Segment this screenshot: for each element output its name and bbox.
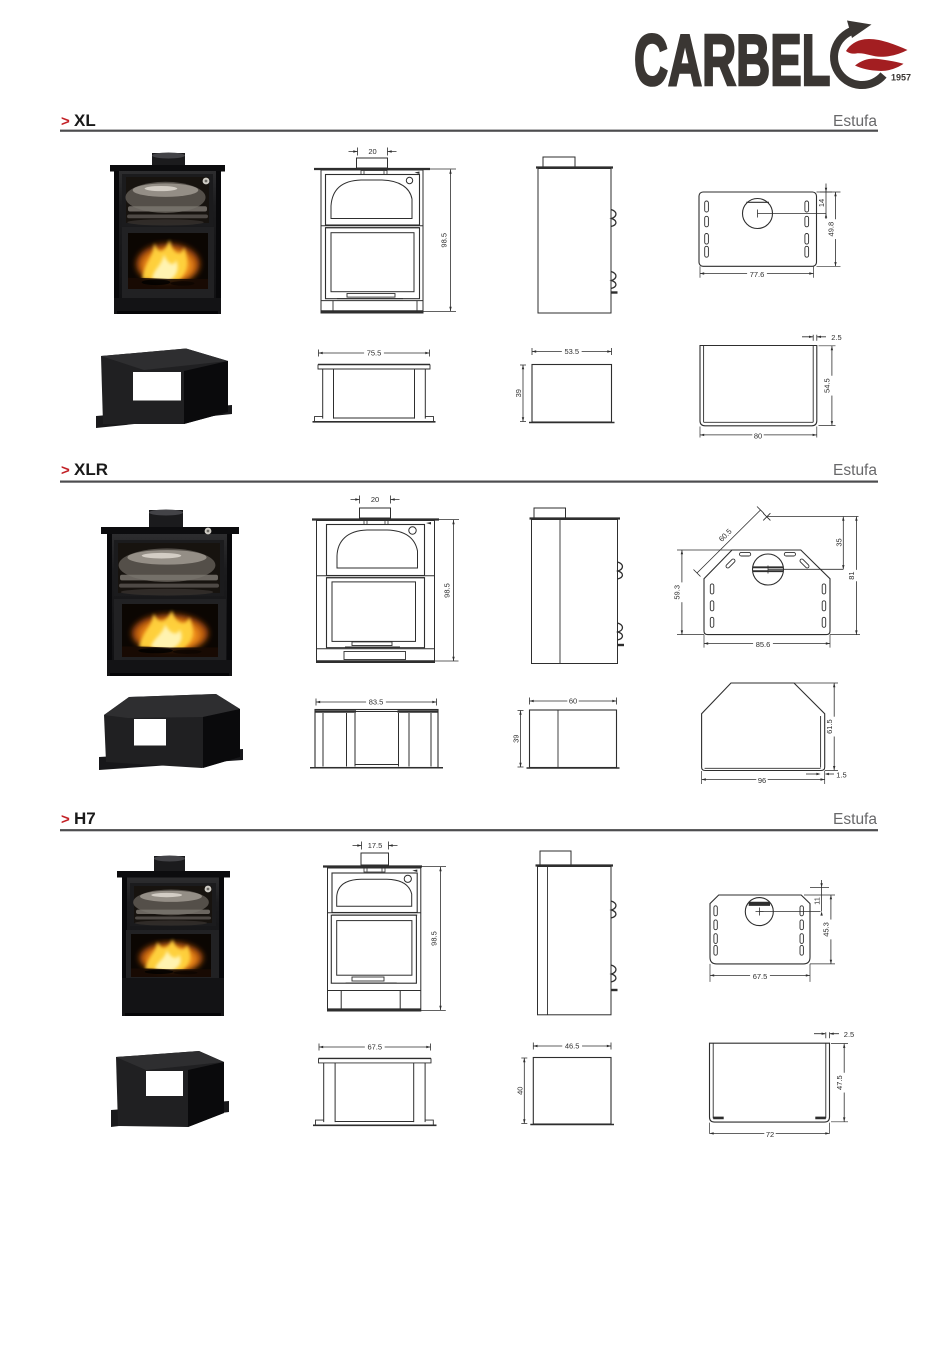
svg-text:20: 20 [368, 147, 376, 156]
svg-text:45.3: 45.3 [822, 922, 831, 937]
svg-text:49.8: 49.8 [826, 222, 835, 237]
svg-text:17.5: 17.5 [368, 841, 383, 850]
svg-text:59.3: 59.3 [673, 585, 682, 600]
svg-text:98.5: 98.5 [440, 233, 449, 248]
svg-text:>: > [61, 462, 70, 479]
svg-text:>: > [61, 811, 70, 828]
svg-text:80: 80 [754, 431, 762, 440]
svg-text:Estufa: Estufa [833, 113, 877, 130]
svg-text:35: 35 [834, 538, 843, 546]
svg-text:85.6: 85.6 [756, 640, 771, 649]
svg-text:46.5: 46.5 [565, 1042, 580, 1051]
svg-text:XL: XL [74, 111, 96, 130]
svg-text:1957: 1957 [891, 73, 911, 83]
svg-text:96: 96 [758, 776, 766, 785]
svg-text:53.5: 53.5 [564, 347, 579, 356]
svg-text:81: 81 [847, 571, 856, 579]
svg-text:54.5: 54.5 [823, 378, 832, 393]
svg-text:1.5: 1.5 [836, 770, 846, 779]
svg-text:CARBEL: CARBEL [634, 20, 830, 100]
svg-text:2.5: 2.5 [831, 333, 841, 342]
svg-text:39: 39 [514, 389, 523, 397]
svg-text:Estufa: Estufa [833, 811, 877, 828]
svg-text:75.5: 75.5 [367, 349, 382, 358]
svg-text:>: > [61, 113, 70, 130]
svg-text:61.5: 61.5 [825, 719, 834, 734]
svg-text:20: 20 [371, 495, 379, 504]
svg-text:98.5: 98.5 [430, 931, 439, 946]
svg-text:40: 40 [515, 1087, 524, 1095]
svg-text:11: 11 [813, 897, 822, 905]
svg-text:60: 60 [569, 697, 577, 706]
svg-text:98.5: 98.5 [443, 583, 452, 598]
svg-text:47.5: 47.5 [835, 1075, 844, 1090]
svg-text:83.5: 83.5 [369, 698, 384, 707]
svg-text:72: 72 [766, 1130, 774, 1139]
svg-text:77.6: 77.6 [750, 270, 765, 279]
svg-text:67.5: 67.5 [753, 972, 768, 981]
svg-text:Estufa: Estufa [833, 462, 877, 479]
svg-text:67.5: 67.5 [367, 1043, 382, 1052]
svg-text:39: 39 [512, 735, 521, 743]
svg-text:XLR: XLR [74, 460, 108, 479]
svg-text:H7: H7 [74, 809, 96, 828]
svg-text:2.5: 2.5 [844, 1030, 854, 1039]
svg-text:14: 14 [817, 199, 826, 207]
